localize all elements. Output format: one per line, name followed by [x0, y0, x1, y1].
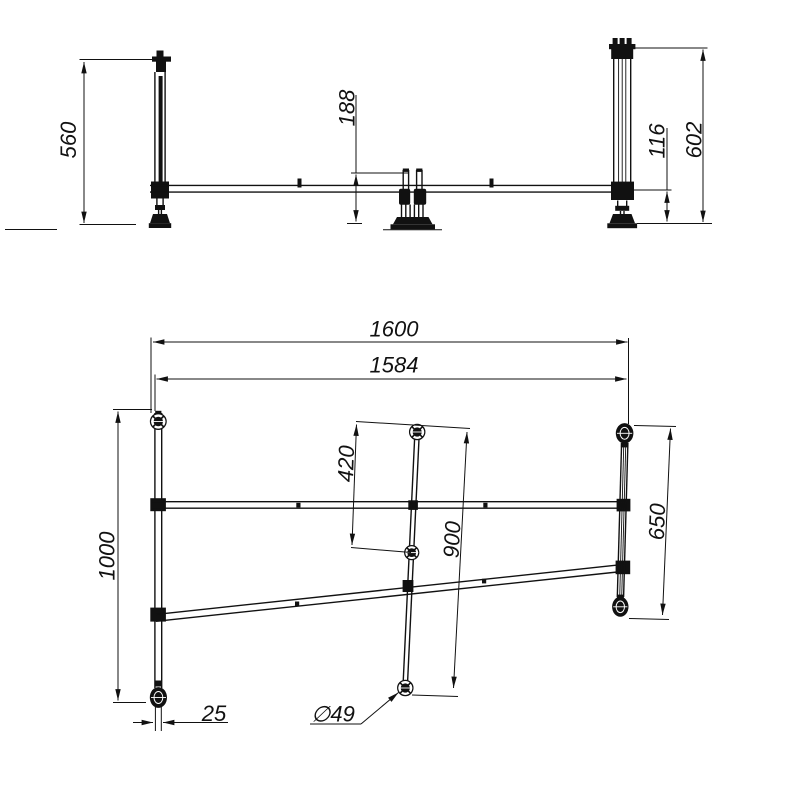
frame-drawing: 560 188 116 602	[0, 0, 800, 800]
center-support	[383, 169, 442, 230]
foot-left-top	[151, 414, 167, 430]
dimension-plan-center-span: 900	[412, 432, 467, 697]
plan-right-upright	[612, 423, 633, 617]
foot-center-top	[410, 424, 425, 439]
joint-left-beam	[150, 498, 166, 511]
rail-joint-tick	[482, 579, 486, 584]
dimension-front-underbeam-height: 116	[633, 123, 672, 222]
left-post	[149, 51, 171, 229]
dimension-label: 1600	[370, 317, 420, 342]
dimension-label: 900	[439, 520, 466, 559]
beam-joint-tick	[298, 179, 302, 188]
plan-top-rail	[152, 499, 630, 512]
plan-view: 1600 1584 1000 420 900	[95, 317, 677, 732]
dimension-label: 420	[333, 444, 359, 482]
dimension-label: 188	[335, 89, 360, 126]
dimension-front-center-height: 188	[335, 89, 409, 224]
plan-diagonal-rail	[156, 561, 630, 622]
dimension-label: 1000	[95, 531, 120, 581]
right-post	[607, 38, 637, 228]
foot-center-bottom	[398, 680, 413, 695]
foot-right-bottom	[612, 595, 628, 617]
foot-left-bottom	[150, 687, 167, 708]
dimension-front-height-left: 560	[56, 60, 158, 225]
rail-joint-tick	[296, 503, 300, 508]
dimension-plan-inner-length: 1584	[155, 353, 627, 412]
dimension-label: 25	[201, 701, 227, 726]
technical-drawing-page: 560 188 116 602	[0, 0, 800, 800]
dimension-label: 602	[682, 122, 707, 159]
main-beam	[150, 179, 631, 193]
plan-center-upright	[398, 424, 425, 695]
callout-foot-diameter: ∅49	[310, 693, 399, 727]
dimension-label: 650	[644, 502, 670, 540]
dimension-plan-right-span: 650	[629, 426, 676, 620]
dimension-plan-width: 1000	[95, 410, 153, 703]
front-elevation-view: 560 188 116 602	[5, 38, 712, 230]
rail-joint-tick	[483, 503, 487, 508]
rail-joint-tick	[295, 602, 299, 607]
dimension-label: 1584	[370, 353, 419, 378]
joint-right-beam	[617, 499, 631, 512]
plan-left-upright	[150, 411, 167, 731]
dimension-label: ∅49	[311, 702, 355, 727]
dimension-plan-tube-width: 25	[133, 701, 228, 726]
dimension-label: 560	[56, 121, 81, 158]
dimension-label: 116	[645, 123, 670, 159]
foot-right-top	[616, 423, 634, 447]
beam-joint-tick	[490, 179, 494, 188]
